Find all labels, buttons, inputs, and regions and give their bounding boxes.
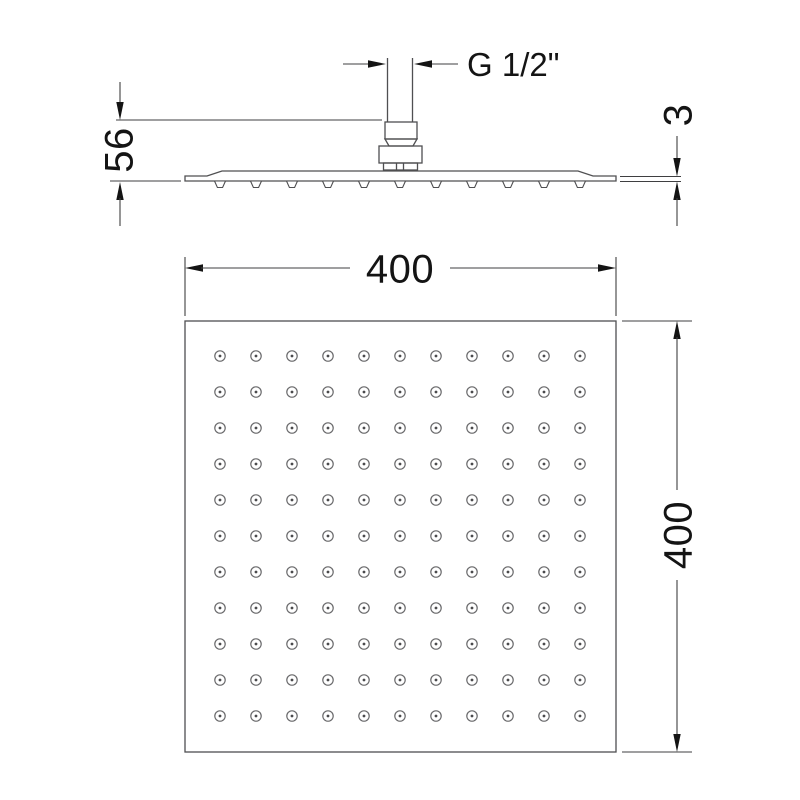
nozzle-hole-center	[471, 679, 474, 682]
nozzle-hole-center	[507, 715, 510, 718]
nozzle-hole-center	[507, 463, 510, 466]
nozzle-hole-center	[327, 535, 330, 538]
thread-size-label: G 1/2"	[467, 46, 559, 83]
nozzle-hole-center	[579, 391, 582, 394]
nozzle-tip	[215, 181, 226, 188]
nozzle-hole-center	[579, 535, 582, 538]
nozzle-hole-center	[543, 499, 546, 502]
nozzle-hole-center	[435, 643, 438, 646]
hole-grid	[215, 351, 585, 721]
plate-thickness-label: 3	[656, 104, 700, 127]
nozzle-hole-center	[435, 607, 438, 610]
nozzle-hole-center	[399, 643, 402, 646]
nozzle-hole-center	[363, 643, 366, 646]
nozzle-hole-center	[291, 715, 294, 718]
plate-width-label: 400	[366, 247, 434, 291]
nozzle-hole-center	[507, 535, 510, 538]
connector-upper-collar	[385, 122, 417, 139]
height-arrow-up-icon	[116, 182, 123, 200]
nozzle-hole-center	[471, 391, 474, 394]
nozzle-hole-center	[579, 427, 582, 430]
nozzle-hole-center	[291, 535, 294, 538]
nozzle-hole-center	[327, 355, 330, 358]
nozzle-row	[215, 181, 586, 188]
nozzle-hole-center	[255, 571, 258, 574]
nozzle-hole-center	[255, 679, 258, 682]
nozzle-hole-center	[399, 499, 402, 502]
nozzle-hole-center	[471, 355, 474, 358]
nozzle-tip	[395, 181, 406, 188]
depth-arrow-up-icon	[673, 321, 680, 339]
nozzle-hole-center	[579, 355, 582, 358]
nozzle-hole-center	[327, 643, 330, 646]
plate-profile	[185, 171, 616, 181]
nozzle-hole-center	[579, 571, 582, 574]
nozzle-hole-center	[255, 535, 258, 538]
nozzle-hole-center	[435, 427, 438, 430]
nozzle-hole-center	[219, 391, 222, 394]
nozzle-tip	[575, 181, 586, 188]
nozzle-hole-center	[507, 499, 510, 502]
nozzle-hole-center	[291, 391, 294, 394]
nozzle-tip	[251, 181, 262, 188]
nozzle-hole-center	[219, 463, 222, 466]
nozzle-hole-center	[507, 607, 510, 610]
nozzle-hole-center	[327, 715, 330, 718]
nozzle-hole-center	[399, 463, 402, 466]
nozzle-hole-center	[435, 571, 438, 574]
connector-nut	[379, 146, 422, 163]
connector-taper	[385, 139, 417, 146]
nozzle-hole-center	[255, 643, 258, 646]
nozzle-hole-center	[255, 355, 258, 358]
nozzle-hole-center	[507, 427, 510, 430]
nozzle-hole-center	[219, 427, 222, 430]
nozzle-hole-center	[507, 679, 510, 682]
nozzle-hole-center	[543, 607, 546, 610]
nozzle-hole-center	[579, 499, 582, 502]
height-arrow-down-icon	[116, 102, 123, 120]
nozzle-hole-center	[255, 391, 258, 394]
nozzle-hole-center	[399, 355, 402, 358]
nozzle-hole-center	[363, 715, 366, 718]
nozzle-hole-center	[507, 355, 510, 358]
nozzle-hole-center	[363, 463, 366, 466]
nozzle-hole-center	[291, 607, 294, 610]
nozzle-hole-center	[507, 391, 510, 394]
nozzle-hole-center	[327, 391, 330, 394]
nozzle-hole-center	[363, 391, 366, 394]
nozzle-hole-center	[471, 607, 474, 610]
nozzle-hole-center	[219, 607, 222, 610]
nozzle-hole-center	[435, 535, 438, 538]
nozzle-hole-center	[219, 679, 222, 682]
nozzle-hole-center	[363, 607, 366, 610]
nozzle-hole-center	[291, 679, 294, 682]
nozzle-hole-center	[219, 499, 222, 502]
nozzle-hole-center	[291, 571, 294, 574]
nozzle-hole-center	[363, 427, 366, 430]
nozzle-hole-center	[291, 643, 294, 646]
nozzle-hole-center	[471, 571, 474, 574]
nozzle-hole-center	[363, 535, 366, 538]
nozzle-hole-center	[435, 355, 438, 358]
nozzle-hole-center	[435, 715, 438, 718]
nozzle-hole-center	[363, 571, 366, 574]
dimension-thread: G 1/2"	[343, 46, 559, 83]
nozzle-hole-center	[507, 643, 510, 646]
drawing-canvas: G 1/2" 56 3	[0, 0, 800, 800]
nozzle-hole-center	[291, 427, 294, 430]
nozzle-tip	[539, 181, 550, 188]
nozzle-hole-center	[363, 355, 366, 358]
nozzle-hole-center	[543, 715, 546, 718]
nozzle-hole-center	[255, 427, 258, 430]
depth-arrow-down-icon	[673, 734, 680, 752]
width-arrow-right-icon	[598, 264, 616, 271]
nozzle-hole-center	[435, 391, 438, 394]
dimension-plate-width: 400	[185, 247, 616, 316]
nozzle-hole-center	[399, 571, 402, 574]
nozzle-hole-center	[219, 535, 222, 538]
thickness-arrow-up-icon	[673, 182, 680, 201]
nozzle-hole-center	[327, 427, 330, 430]
nozzle-hole-center	[543, 463, 546, 466]
nozzle-hole-center	[471, 427, 474, 430]
plate-depth-label: 400	[656, 501, 700, 569]
nozzle-hole-center	[507, 571, 510, 574]
nozzle-hole-center	[543, 427, 546, 430]
nozzle-hole-center	[399, 715, 402, 718]
nozzle-hole-center	[543, 643, 546, 646]
nozzle-hole-center	[291, 499, 294, 502]
nozzle-hole-center	[327, 463, 330, 466]
nozzle-tip	[323, 181, 334, 188]
nozzle-hole-center	[327, 571, 330, 574]
head-height-label: 56	[97, 127, 141, 173]
bottom-view: 400 400	[185, 247, 700, 752]
nozzle-hole-center	[543, 391, 546, 394]
nozzle-hole-center	[291, 463, 294, 466]
nozzle-hole-center	[327, 607, 330, 610]
dimension-head-height: 56	[97, 82, 382, 226]
nozzle-hole-center	[435, 679, 438, 682]
nozzle-tip	[431, 181, 442, 188]
nozzle-hole-center	[399, 391, 402, 394]
nozzle-hole-center	[579, 715, 582, 718]
nozzle-hole-center	[363, 679, 366, 682]
thread-arrow-right-icon	[368, 60, 386, 68]
nozzle-hole-center	[255, 499, 258, 502]
nozzle-hole-center	[471, 463, 474, 466]
nozzle-hole-center	[579, 679, 582, 682]
dimension-plate-thickness: 3	[620, 104, 700, 226]
shower-head-dimension-drawing: G 1/2" 56 3	[0, 0, 800, 800]
dimension-plate-depth: 400	[622, 321, 700, 752]
nozzle-hole-center	[219, 571, 222, 574]
side-view: G 1/2" 56 3	[97, 46, 700, 226]
nozzle-hole-center	[579, 643, 582, 646]
nozzle-hole-center	[471, 535, 474, 538]
nozzle-hole-center	[543, 355, 546, 358]
nozzle-hole-center	[255, 463, 258, 466]
nozzle-hole-center	[219, 715, 222, 718]
nozzle-tip	[467, 181, 478, 188]
nozzle-hole-center	[399, 427, 402, 430]
nozzle-hole-center	[291, 355, 294, 358]
width-arrow-left-icon	[185, 264, 203, 271]
nozzle-hole-center	[435, 463, 438, 466]
nozzle-hole-center	[363, 499, 366, 502]
connector-base	[384, 163, 418, 170]
nozzle-tip	[359, 181, 370, 188]
nozzle-hole-center	[399, 679, 402, 682]
nozzle-hole-center	[219, 355, 222, 358]
nozzle-tip	[503, 181, 514, 188]
thread-arrow-left-icon	[414, 60, 432, 68]
nozzle-hole-center	[471, 643, 474, 646]
nozzle-hole-center	[399, 535, 402, 538]
nozzle-tip	[287, 181, 298, 188]
nozzle-hole-center	[579, 463, 582, 466]
nozzle-hole-center	[543, 571, 546, 574]
nozzle-hole-center	[255, 607, 258, 610]
nozzle-hole-center	[579, 607, 582, 610]
nozzle-hole-center	[435, 499, 438, 502]
nozzle-hole-center	[327, 679, 330, 682]
nozzle-hole-center	[219, 643, 222, 646]
nozzle-hole-center	[471, 715, 474, 718]
nozzle-hole-center	[399, 607, 402, 610]
nozzle-hole-center	[327, 499, 330, 502]
nozzle-hole-center	[471, 499, 474, 502]
nozzle-hole-center	[255, 715, 258, 718]
nozzle-hole-center	[543, 679, 546, 682]
thickness-arrow-down-icon	[673, 158, 680, 177]
nozzle-hole-center	[543, 535, 546, 538]
